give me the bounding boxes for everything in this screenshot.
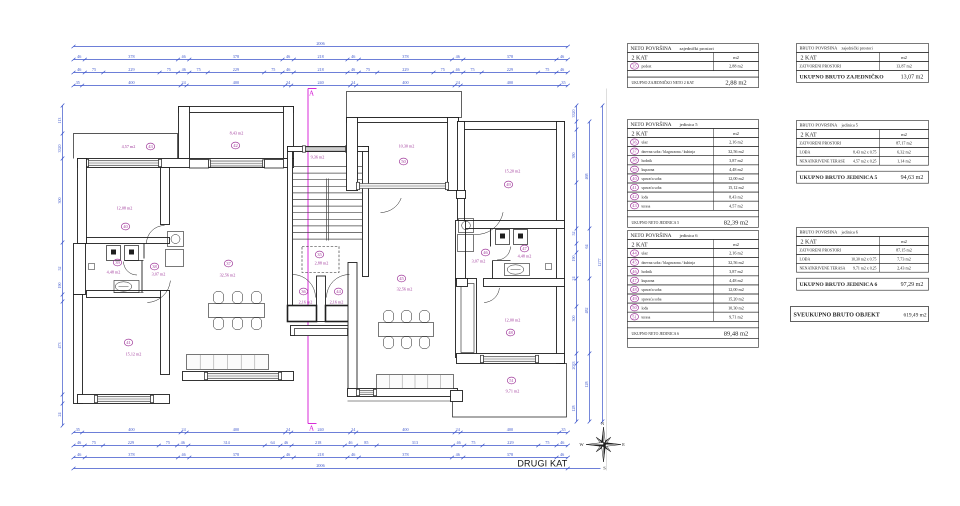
svg-text:spavaća soba: spavaća soba: [642, 297, 662, 301]
svg-text:SVEUKUPNO BRUTO OBJEKT: SVEUKUPNO BRUTO OBJEKT: [794, 313, 880, 319]
svg-text:46: 46: [560, 440, 564, 445]
svg-text:52: 52: [571, 232, 576, 236]
svg-text:46: 46: [560, 452, 564, 457]
svg-text:46: 46: [182, 452, 186, 457]
svg-text:spavaća soba: spavaća soba: [642, 186, 662, 190]
svg-text:42: 42: [632, 194, 636, 199]
svg-text:52: 52: [57, 267, 62, 271]
svg-text:hodnik: hodnik: [642, 270, 653, 274]
svg-text:218: 218: [317, 54, 323, 59]
svg-text:218: 218: [317, 452, 323, 457]
svg-text:DRUGI KAT: DRUGI KAT: [517, 459, 567, 469]
svg-text:75: 75: [545, 67, 549, 72]
svg-text:41: 41: [126, 340, 131, 345]
svg-text:229: 229: [233, 67, 239, 72]
svg-text:473: 473: [57, 343, 62, 349]
svg-text:229: 229: [402, 67, 408, 72]
svg-text:A: A: [309, 425, 314, 433]
svg-text:terasa: terasa: [642, 204, 651, 208]
svg-text:2033: 2033: [571, 362, 576, 370]
svg-text:UKUPNO BRUTO ZAJEDNIČKO: UKUPNO BRUTO ZAJEDNIČKO: [800, 72, 885, 80]
svg-text:46: 46: [77, 440, 81, 445]
svg-text:46: 46: [284, 440, 288, 445]
svg-text:378: 378: [128, 452, 134, 457]
svg-text:64: 64: [584, 245, 589, 249]
svg-text:46: 46: [286, 67, 290, 72]
svg-text:LOĐA: LOĐA: [800, 151, 811, 155]
svg-text:UKUPNO NETO JEDINICA 6: UKUPNO NETO JEDINICA 6: [632, 332, 680, 336]
svg-text:spavaća soba: spavaća soba: [642, 288, 662, 292]
svg-text:46: 46: [351, 452, 355, 457]
svg-text:2 KAT: 2 KAT: [801, 133, 818, 139]
svg-text:1277: 1277: [597, 259, 602, 267]
svg-text:39: 39: [115, 260, 120, 265]
svg-text:94,63 m2: 94,63 m2: [901, 175, 924, 181]
svg-text:229: 229: [507, 440, 513, 445]
svg-text:218: 218: [317, 67, 323, 72]
svg-text:37: 37: [226, 261, 231, 266]
svg-text:spavaća soba: spavaća soba: [642, 177, 662, 181]
svg-text:75: 75: [166, 440, 170, 445]
svg-text:51: 51: [632, 314, 636, 319]
svg-text:44: 44: [336, 289, 341, 294]
svg-text:jedinica 5: jedinica 5: [679, 122, 699, 127]
svg-text:619,49 m2: 619,49 m2: [904, 313, 927, 319]
svg-text:46: 46: [286, 54, 290, 59]
svg-text:400: 400: [128, 427, 134, 432]
svg-text:75: 75: [470, 67, 474, 72]
svg-text:35: 35: [76, 80, 80, 85]
svg-text:240: 240: [317, 427, 323, 432]
svg-text:240: 240: [317, 80, 323, 85]
svg-text:m2: m2: [733, 55, 740, 60]
svg-text:46: 46: [182, 54, 186, 59]
svg-text:lođa: lođa: [642, 195, 649, 199]
svg-text:75: 75: [545, 440, 549, 445]
svg-text:46: 46: [351, 54, 355, 59]
svg-text:48: 48: [508, 330, 513, 335]
svg-text:75: 75: [167, 67, 171, 72]
svg-text:75: 75: [271, 67, 275, 72]
svg-text:190: 190: [571, 256, 576, 262]
svg-text:378: 378: [507, 452, 513, 457]
svg-text:50: 50: [401, 159, 406, 164]
svg-text:UKUPNO BRUTO JEDINICA 5: UKUPNO BRUTO JEDINICA 5: [800, 175, 878, 181]
svg-text:terasa: terasa: [642, 316, 651, 320]
svg-text:NENATKRIVENE TERASA: NENATKRIVENE TERASA: [800, 267, 846, 271]
svg-text:85: 85: [364, 440, 368, 445]
svg-text:378: 378: [233, 54, 239, 59]
svg-text:BRUTO POVRŠINA: BRUTO POVRŠINA: [800, 46, 839, 51]
svg-text:51: 51: [509, 378, 514, 383]
svg-text:400: 400: [233, 427, 239, 432]
svg-text:LOĐA: LOĐA: [800, 258, 811, 262]
svg-text:3320: 3320: [571, 110, 576, 118]
svg-text:113: 113: [57, 118, 62, 124]
svg-text:400: 400: [507, 427, 513, 432]
svg-text:ZATVORENI PROSTORI: ZATVORENI PROSTORI: [800, 249, 842, 253]
svg-text:46: 46: [286, 452, 290, 457]
svg-text:NENATKRIVENE TERASE: NENATKRIVENE TERASE: [800, 160, 846, 164]
svg-text:NETO POVRŠINA: NETO POVRŠINA: [631, 120, 672, 128]
svg-text:UKUPNO ZAJEDNIČKO NETO 2 KAT: UKUPNO ZAJEDNIČKO NETO 2 KAT: [632, 80, 695, 85]
svg-text:46: 46: [351, 67, 355, 72]
svg-text:43: 43: [148, 144, 153, 149]
svg-text:24: 24: [57, 413, 62, 417]
svg-text:jedinica 6: jedinica 6: [841, 230, 858, 235]
svg-text:kupaona: kupaona: [642, 168, 655, 172]
svg-text:229: 229: [507, 67, 513, 72]
svg-text:46: 46: [77, 452, 81, 457]
svg-text:378: 378: [402, 54, 408, 59]
svg-text:46: 46: [181, 440, 185, 445]
svg-text:dnevna soba / blagavaona / kuh: dnevna soba / blagavaona / kuhinja: [642, 150, 696, 154]
svg-text:35: 35: [76, 427, 80, 432]
svg-text:400: 400: [507, 80, 513, 85]
svg-text:46: 46: [456, 54, 460, 59]
svg-text:m2: m2: [901, 55, 908, 60]
svg-text:E: E: [622, 442, 625, 447]
svg-text:378: 378: [402, 452, 408, 457]
svg-text:378: 378: [128, 54, 134, 59]
svg-text:46: 46: [560, 54, 564, 59]
svg-text:300: 300: [57, 198, 62, 204]
svg-text:2 KAT: 2 KAT: [632, 243, 649, 249]
svg-text:400: 400: [402, 80, 408, 85]
svg-text:13,07 m2: 13,07 m2: [901, 74, 924, 80]
svg-text:468: 468: [584, 174, 589, 180]
svg-text:229: 229: [128, 440, 134, 445]
svg-text:2,88 m2: 2,88 m2: [725, 80, 746, 87]
svg-text:128: 128: [584, 382, 589, 388]
svg-text:m2: m2: [733, 242, 740, 247]
svg-text:2 KAT: 2 KAT: [801, 240, 818, 246]
svg-text:75: 75: [197, 67, 201, 72]
svg-text:46: 46: [182, 67, 186, 72]
svg-text:S: S: [603, 466, 606, 471]
svg-text:45: 45: [399, 276, 404, 281]
svg-text:35: 35: [561, 80, 565, 85]
svg-text:97,29 m2: 97,29 m2: [901, 282, 924, 288]
svg-text:42: 42: [233, 143, 238, 148]
svg-text:314: 314: [223, 440, 230, 445]
svg-text:75: 75: [366, 67, 370, 72]
svg-text:40: 40: [123, 224, 128, 229]
svg-text:46: 46: [457, 440, 461, 445]
svg-text:ZATVORENI PROSTORI: ZATVORENI PROSTORI: [800, 65, 842, 69]
svg-text:47: 47: [522, 246, 527, 251]
svg-text:400: 400: [128, 80, 134, 85]
svg-text:W: W: [579, 442, 584, 447]
svg-text:75: 75: [441, 67, 445, 72]
svg-text:m2: m2: [901, 239, 908, 244]
svg-text:46: 46: [348, 440, 352, 445]
svg-text:zajednički prostori: zajednički prostori: [842, 46, 874, 51]
svg-text:2006: 2006: [316, 463, 324, 468]
svg-text:82,39 m2: 82,39 m2: [724, 219, 749, 226]
svg-text:ZATVORENI PROSTORI: ZATVORENI PROSTORI: [800, 142, 842, 146]
svg-text:3320: 3320: [57, 145, 62, 153]
svg-text:jedinica 5: jedinica 5: [841, 123, 858, 128]
svg-text:BRUTO POVRŠINA: BRUTO POVRŠINA: [800, 123, 839, 128]
svg-text:128: 128: [571, 406, 576, 412]
svg-text:46: 46: [456, 452, 460, 457]
svg-text:46: 46: [77, 54, 81, 59]
svg-text:218: 218: [315, 440, 321, 445]
svg-text:49: 49: [506, 182, 511, 187]
svg-text:313: 313: [412, 440, 418, 445]
svg-text:2 KAT: 2 KAT: [632, 132, 649, 138]
svg-text:482: 482: [584, 308, 589, 314]
svg-text:NETO POVRŠINA: NETO POVRŠINA: [631, 44, 672, 52]
svg-text:35: 35: [561, 427, 565, 432]
svg-text:2006: 2006: [316, 41, 324, 46]
svg-text:75: 75: [471, 440, 475, 445]
svg-text:46: 46: [483, 250, 488, 255]
svg-text:380: 380: [571, 153, 576, 159]
svg-text:378: 378: [233, 452, 239, 457]
svg-text:UKUPNO BRUTO JEDINICA 6: UKUPNO BRUTO JEDINICA 6: [800, 282, 878, 288]
svg-text:podest: podest: [642, 65, 653, 69]
svg-text:75: 75: [92, 67, 96, 72]
svg-text:m2: m2: [901, 132, 908, 137]
svg-text:38: 38: [152, 264, 157, 269]
svg-text:NETO POVRŠINA: NETO POVRŠINA: [631, 231, 672, 239]
svg-text:46: 46: [77, 67, 81, 72]
svg-text:24: 24: [571, 277, 576, 281]
svg-text:jedinica 6: jedinica 6: [679, 233, 699, 238]
svg-text:41: 41: [632, 185, 636, 190]
svg-text:BRUTO POVRŠINA: BRUTO POVRŠINA: [800, 230, 839, 235]
svg-text:ulaz: ulaz: [642, 252, 649, 256]
svg-text:lođa: lođa: [642, 306, 649, 310]
svg-text:46: 46: [560, 67, 564, 72]
svg-text:zajednički prostori: zajednički prostori: [680, 46, 715, 51]
svg-text:190: 190: [57, 283, 62, 289]
svg-text:kupaona: kupaona: [642, 279, 655, 283]
svg-text:UKUPNO NETO JEDINICA 5: UKUPNO NETO JEDINICA 5: [632, 221, 680, 225]
svg-text:m2: m2: [733, 131, 740, 136]
svg-text:35: 35: [317, 252, 322, 257]
svg-text:400: 400: [233, 80, 239, 85]
svg-text:300: 300: [571, 316, 576, 322]
svg-text:89,48 m2: 89,48 m2: [724, 330, 749, 337]
svg-text:ulaz: ulaz: [642, 141, 649, 145]
svg-text:dnevna soba / blagavaona / kuh: dnevna soba / blagavaona / kuhinja: [642, 261, 696, 265]
svg-text:46: 46: [456, 67, 460, 72]
svg-text:378: 378: [507, 54, 513, 59]
svg-text:229: 229: [128, 67, 134, 72]
svg-text:75: 75: [92, 440, 96, 445]
svg-text:hodnik: hodnik: [642, 159, 653, 163]
svg-text:36: 36: [301, 289, 306, 294]
svg-text:2 KAT: 2 KAT: [801, 56, 818, 62]
svg-text:400: 400: [402, 427, 408, 432]
svg-text:2 KAT: 2 KAT: [632, 56, 649, 62]
svg-text:A: A: [309, 90, 314, 98]
